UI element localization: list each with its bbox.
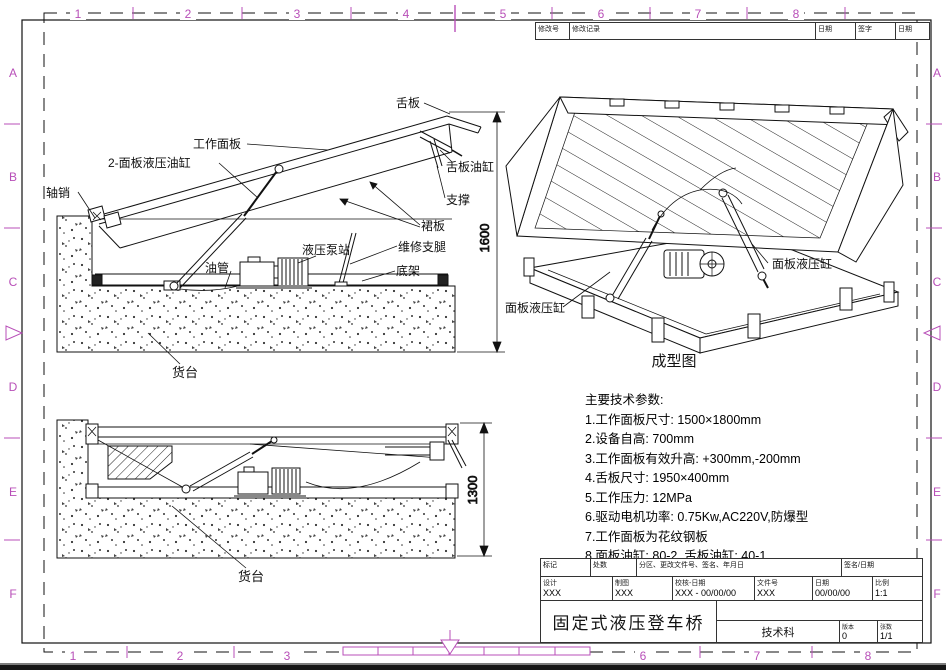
label-base-frame: 底架 [396, 263, 420, 278]
version-value: 0 [842, 631, 875, 641]
design-value: XXX [543, 588, 610, 598]
zone-number: 2 [185, 7, 192, 21]
draft-label: 制图 [615, 578, 670, 588]
zone-number: 1 [70, 649, 77, 663]
zone-change-label: 分区、更改文件号、签名、年月日 [637, 559, 842, 576]
title-block-row-signoff: 设计 XXX 制图 XXX 校核-日期 XXX - 00/00/00 文件号 X… [541, 577, 922, 601]
zone-letter: D [9, 380, 18, 394]
zone-number: 3 [294, 7, 301, 21]
zone-letter: B [933, 170, 941, 184]
zone-number: 5 [500, 7, 507, 21]
department: 技术科 [717, 621, 840, 642]
title-block-row-title: 固定式液压登车桥 技术科 版本 0 张数 1/1 [541, 601, 922, 642]
label-support: 支撑 [446, 192, 470, 207]
dimension-1300: 1300 [457, 423, 492, 556]
label-iso-cylinder-right: 面板液压缸 [772, 256, 832, 271]
label-platform-lower: 货台 [238, 569, 264, 584]
iso-caption: 成型图 [651, 353, 696, 370]
zone-letter: A [9, 66, 17, 80]
side-view-lowered: 货台 1300 [57, 420, 492, 584]
tech-spec-item: 1.工作面板尺寸: 1500×1800mm [585, 411, 808, 431]
label-pump-station: 液压泵站 [302, 242, 350, 257]
zone-number: 6 [640, 649, 647, 663]
scale-value: 1:1 [875, 588, 920, 598]
draft-value: XXX [615, 588, 670, 598]
iso-view: 面板液压缸 面板液压缸 成型图 [505, 97, 908, 370]
zone-letter: C [9, 275, 18, 289]
zone-letter: F [9, 587, 16, 601]
zone-number: 3 [284, 649, 291, 663]
zone-letter: C [933, 275, 942, 289]
tech-spec-item: 3.工作面板有效升高: +300mm,-200mm [585, 450, 808, 470]
zone-letter: A [933, 66, 941, 80]
zone-number: 8 [793, 7, 800, 21]
check-value: XXX - 00/00/00 [675, 588, 752, 598]
tech-spec-item: 6.驱动电机功率: 0.75Kw,AC220V,防爆型 [585, 508, 808, 528]
label-work-panel: 工作面板 [193, 137, 241, 151]
tech-spec-item: 7.工作面板为花纹钢板 [585, 528, 808, 548]
date-value: 00/00/00 [815, 588, 870, 598]
count-label: 处数 [591, 559, 637, 576]
label-platform: 货台 [172, 365, 198, 380]
zone-number: 2 [177, 649, 184, 663]
left-center-mark [6, 326, 22, 340]
drawing-sheet: 1 2 3 4 5 6 7 8 1 2 3 [0, 0, 946, 670]
zone-number: 7 [754, 649, 761, 663]
zone-letter: D [933, 380, 942, 394]
revision-header: 修改号 [536, 23, 570, 39]
zone-number: 6 [598, 7, 605, 21]
zone-letter: E [9, 485, 17, 499]
zone-ruler-left: A B C D E F [4, 66, 22, 601]
tongue-cylinder-shape [420, 131, 462, 156]
zone-number: 1 [75, 7, 82, 21]
design-label: 设计 [543, 578, 610, 588]
title-block: 标记 处数 分区、更改文件号、签名、年月日 签名/日期 设计 XXX 制图 XX… [540, 558, 923, 643]
zone-letter: E [933, 485, 941, 499]
date-label: 日期 [815, 578, 870, 588]
zone-number: 8 [865, 649, 872, 663]
revision-header: 日期 [816, 23, 856, 39]
check-label: 校核-日期 [675, 578, 752, 588]
label-axle-pin: 轴销 [46, 185, 70, 200]
side-view-raised: 轴销 2-面板液压油缸 工作面板 舌板 舌板油缸 支撑 裙板 维修支腿 液压泵站… [46, 96, 505, 380]
label-tongue-cylinder: 舌板油缸 [446, 159, 494, 174]
label-service-leg: 维修支腿 [398, 239, 446, 254]
mark-label: 标记 [541, 559, 591, 576]
pump-station-lowered-shape [234, 462, 420, 496]
tongue-shape [447, 116, 481, 133]
dim-1300-text: 1300 [465, 476, 480, 505]
zone-number: 7 [695, 7, 702, 21]
tech-specs: 主要技术参数: 1.工作面板尺寸: 1500×1800mm 2.设备自高: 70… [585, 391, 808, 567]
scale-label: 比例 [875, 578, 920, 588]
iso-motor [664, 250, 724, 278]
drawing-title: 固定式液压登车桥 [541, 601, 717, 642]
file-label: 文件号 [757, 578, 810, 588]
label-skirt: 裙板 [421, 219, 445, 233]
tech-specs-title: 主要技术参数: [585, 391, 808, 411]
revision-table: 修改号 修改记录 日期 签字 日期 [535, 22, 930, 40]
screen-bottom-bar [0, 663, 946, 670]
dimension-1600: 1600 [449, 112, 505, 352]
zone-ruler-right: A B C D E F [924, 66, 942, 601]
tech-spec-item: 2.设备自高: 700mm [585, 430, 808, 450]
service-leg-shape [335, 233, 356, 286]
title-block-row-marks: 标记 处数 分区、更改文件号、签名、年月日 签名/日期 [541, 559, 922, 577]
hinge-shape [88, 206, 121, 228]
label-iso-cylinder-left: 面板液压缸 [505, 300, 565, 315]
iso-deck [506, 97, 908, 262]
work-panel-shape [97, 116, 452, 248]
tech-spec-item: 5.工作压力: 12MPa [585, 489, 808, 509]
title-block-empty-strip [717, 601, 922, 621]
file-value: XXX [757, 588, 810, 598]
label-tongue: 舌板 [396, 96, 420, 110]
version-label: 版本 [842, 622, 875, 631]
tech-spec-item: 4.舌板尺寸: 1950×400mm [585, 469, 808, 489]
zone-number: 4 [403, 7, 410, 21]
revision-header: 日期 [896, 23, 929, 39]
zone-letter: F [933, 587, 940, 601]
centering-comb [343, 647, 590, 655]
hose-shape [306, 462, 420, 489]
sheet-count-value: 1/1 [880, 631, 920, 641]
revision-header: 签字 [856, 23, 896, 39]
sheet-count-label: 张数 [880, 622, 920, 631]
dim-1600-text: 1600 [477, 224, 492, 253]
signature-label: 签名/日期 [842, 559, 922, 576]
label-oil-pipe: 油管 [205, 260, 229, 275]
zone-letter: B [9, 170, 17, 184]
label-panel-cylinder: 2-面板液压油缸 [108, 155, 191, 170]
revision-header: 修改记录 [570, 23, 816, 39]
right-center-mark [924, 326, 940, 340]
